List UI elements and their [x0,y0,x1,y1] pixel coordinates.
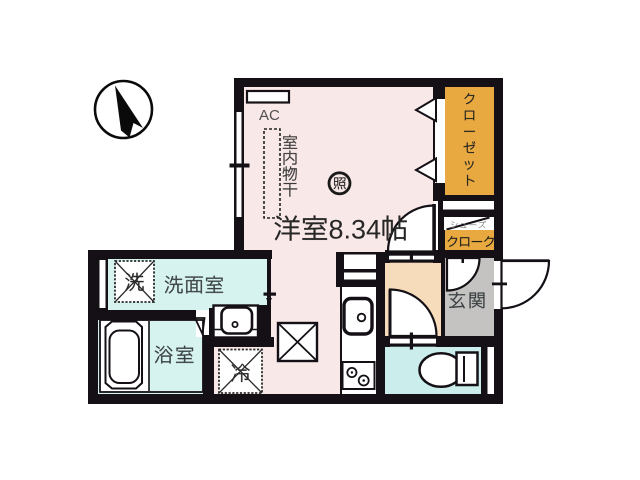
svg-text:8.34: 8.34 [329,215,382,245]
svg-text:AC: AC [259,107,280,124]
